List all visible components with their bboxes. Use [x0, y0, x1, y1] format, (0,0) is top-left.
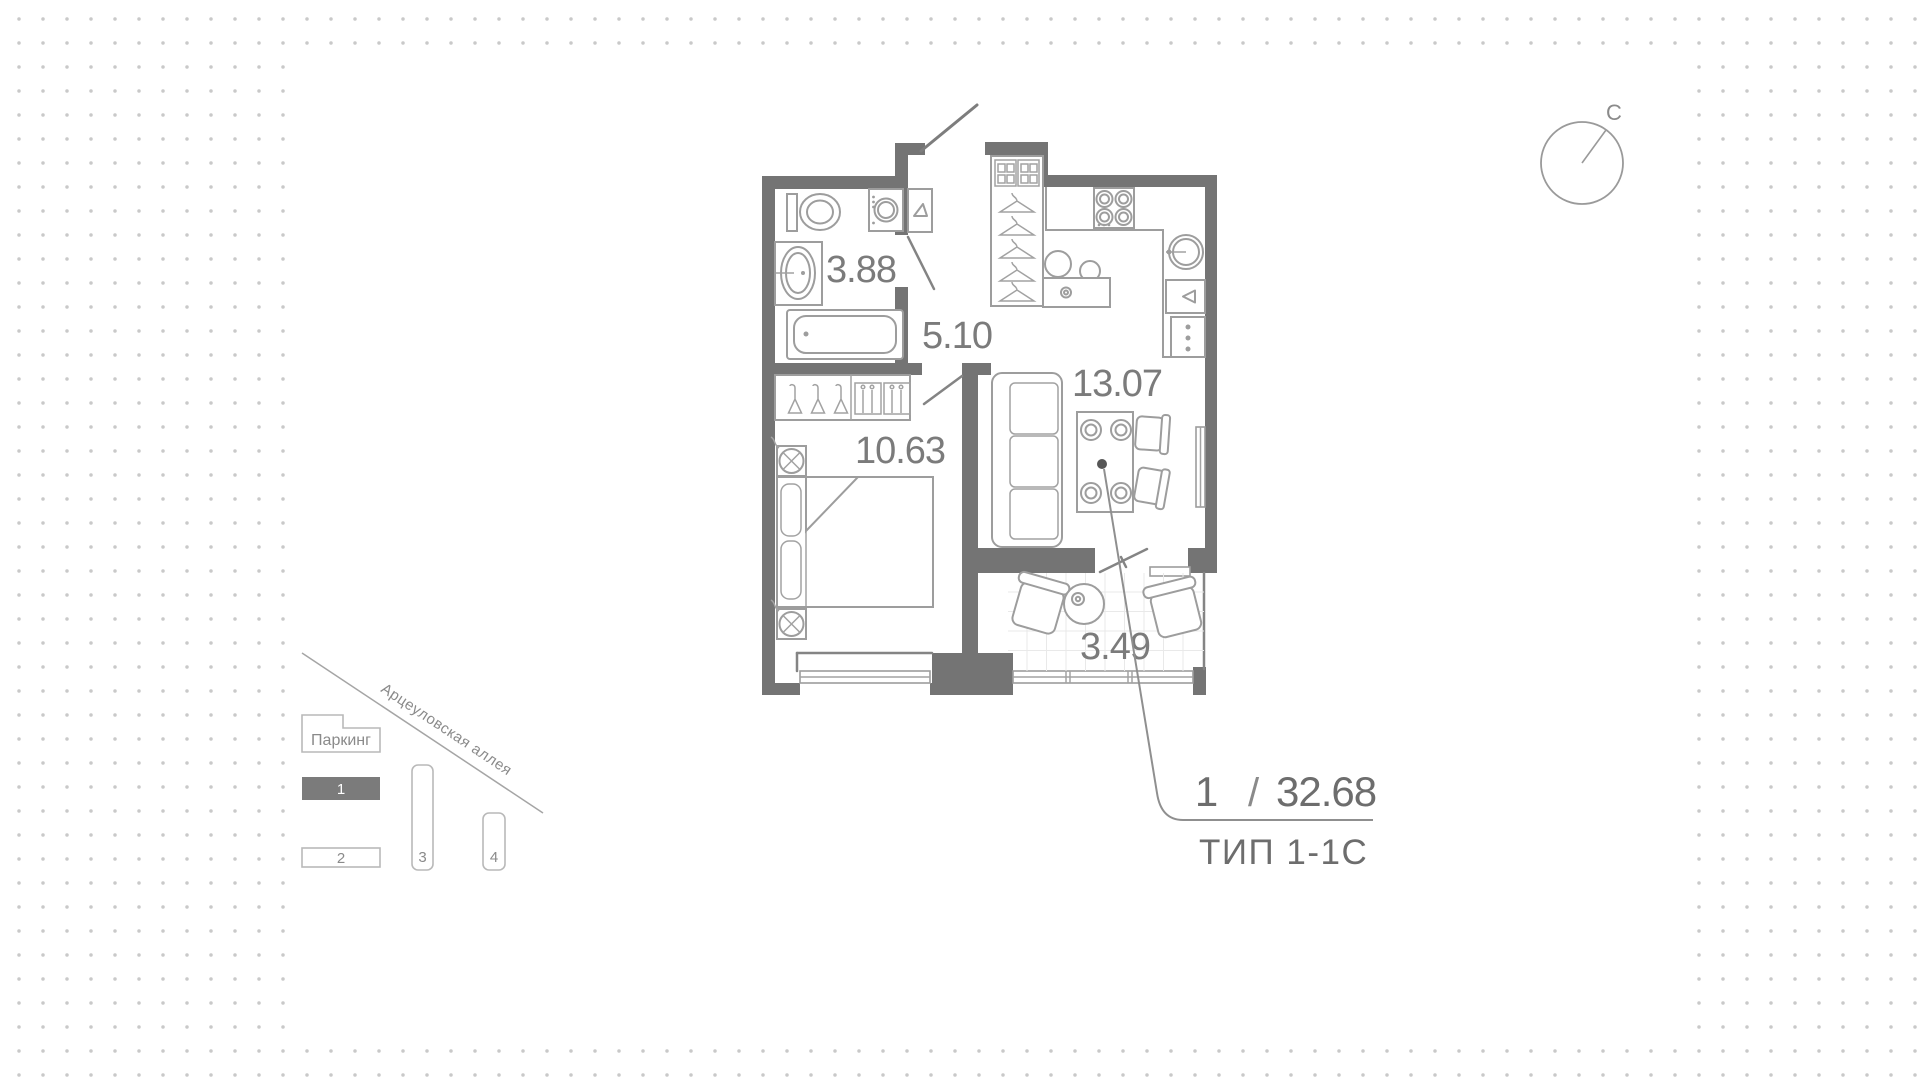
living-room-window	[1196, 427, 1205, 507]
chair-icon	[1135, 413, 1171, 454]
balcony-door-threshold	[1150, 567, 1190, 576]
building-item-2[interactable]: 2	[302, 848, 380, 867]
building-item-3[interactable]: 3	[412, 765, 433, 870]
total-area: 32.68	[1276, 768, 1376, 815]
washing-machine-icon	[869, 189, 903, 231]
floor-plan-svg: 3.88 5.10 13.07 10.63 3.49 1 / 32.68 ТИП…	[0, 0, 1920, 1078]
compass-north-label: С	[1606, 100, 1622, 125]
bedroom-area-label: 10.63	[855, 430, 945, 472]
building-label: 4	[490, 849, 498, 866]
bar-table-icon	[1043, 251, 1110, 307]
bedroom-furniture	[771, 375, 933, 639]
plan-type-label: ТИП 1-1С	[1199, 833, 1368, 872]
sofa-icon	[992, 373, 1062, 547]
bedroom-wardrobe-icon	[775, 375, 910, 420]
entrance-door	[921, 105, 977, 151]
callout-anchor-dot	[1097, 459, 1107, 469]
hall-wardrobe-icon	[991, 156, 1043, 306]
bathtub-icon	[787, 310, 903, 359]
stove-icon	[1094, 188, 1134, 228]
rooms-count: 1	[1195, 768, 1217, 815]
sink-icon	[775, 242, 822, 305]
building-label: 3	[418, 849, 426, 866]
parking-building[interactable]: Паркинг	[302, 715, 380, 752]
building-label: 1	[337, 781, 345, 798]
round-table-icon	[1064, 584, 1104, 624]
armchair-icon	[1142, 576, 1206, 640]
site-minimap: Арцеуловская аллея Паркинг 1 2 3 4	[302, 653, 543, 870]
building-item-1[interactable]: 1	[302, 777, 380, 800]
kitchen-sink-icon	[1166, 235, 1203, 269]
summary-divider: /	[1248, 771, 1260, 815]
chair-icon	[1133, 465, 1170, 510]
building-label: 2	[337, 850, 345, 867]
building-item-4[interactable]: 4	[483, 813, 505, 870]
kitchen-fixtures	[1043, 187, 1205, 357]
toilet-icon	[787, 194, 840, 231]
street-name-label: Арцеуловская аллея	[378, 680, 515, 779]
balcony-area-label: 3.49	[1080, 626, 1150, 668]
kettle-cabinet-icon	[1166, 280, 1205, 313]
bed-icon	[777, 477, 933, 607]
parking-label: Паркинг	[311, 732, 371, 749]
cabinet-dots-icon	[1171, 317, 1205, 357]
bathroom-door	[908, 237, 934, 289]
kitchen-living-area-label: 13.07	[1072, 363, 1162, 405]
bedroom-door	[924, 376, 962, 404]
nightstand-lamp-icon	[771, 437, 806, 476]
hall-cabinet-icon	[908, 189, 932, 232]
hallway-area-label: 5.10	[922, 315, 992, 357]
armchair-icon	[1006, 571, 1071, 636]
bedroom-window	[800, 671, 930, 683]
page: 3.88 5.10 13.07 10.63 3.49 1 / 32.68 ТИП…	[0, 0, 1920, 1078]
bathroom-area-label: 3.88	[826, 249, 896, 291]
compass-icon: С	[1541, 100, 1623, 204]
balcony-glazing	[1013, 671, 1193, 683]
